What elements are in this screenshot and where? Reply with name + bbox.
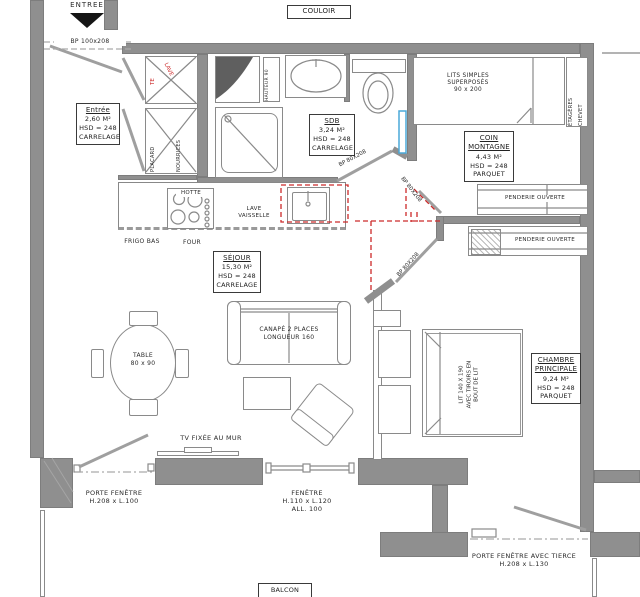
sdb-floor: CARRELAGE [312, 144, 352, 153]
pf-left-line2: H.208 x L.100 [72, 497, 156, 505]
entree-floor: CARRELAGE [79, 133, 117, 142]
hotte-label: HOTTE [176, 190, 206, 197]
room-box-sdb: SDB 3,24 M² HSD = 248 CARRELAGE [309, 114, 355, 156]
sejour-floor: CARRELAGE [216, 281, 258, 290]
chambre-floor: PARQUET [534, 392, 578, 401]
bunk-bed-label: LITS SIMPLES SUPERPOSÉS 90 x 200 [418, 73, 518, 95]
sejour-name: SÉJOUR [216, 254, 258, 263]
bed-line3: BOUT DE LIT [474, 330, 482, 440]
entrance-label: ENTREE [62, 1, 112, 10]
entry-door-label: BP 100x208 [54, 38, 126, 46]
sdb-hsd: HSD = 248 [312, 135, 352, 144]
room-box-entree: Entrée 2,60 M² HSD = 248 CARRELAGE [76, 103, 120, 145]
bunk-line3: 90 x 200 [418, 87, 518, 94]
entree-hsd: HSD = 248 [79, 124, 117, 133]
room-box-coin: COIN MONTAGNE 4,43 M² HSD = 248 PARQUET [464, 131, 514, 182]
etageres-line: ÉTAGÈRES [566, 58, 576, 126]
chambre-area: 9,24 M² [534, 375, 578, 384]
chambre-name1: CHAMBRE [534, 356, 578, 365]
sofa-line2: LONGUEUR 160 [247, 334, 331, 342]
coin-area: 4,43 M² [467, 153, 511, 162]
placard-label: PLACARD [151, 116, 157, 172]
radiator [399, 111, 406, 153]
coin-hsd: HSD = 248 [467, 162, 511, 171]
table-line1: TABLE [122, 352, 164, 360]
lave-line: LAVE [234, 206, 274, 213]
etageres-chevet-label: ÉTAGÈRES CHEVET [566, 58, 586, 126]
coin-name2: MONTAGNE [467, 143, 511, 152]
chambre-hsd: HSD = 248 [534, 384, 578, 393]
window-line1: FENÊTRE [265, 489, 349, 497]
four-label: FOUR [178, 239, 206, 247]
sdb-area: 3,24 M² [312, 126, 352, 135]
pf-tierce-label: PORTE FENÊTRE AVEC TIERCE H.208 x L.130 [450, 552, 598, 568]
room-box-chambre: CHAMBRE PRINCIPALE 9,24 M² HSD = 248 PAR… [531, 353, 581, 404]
hauteur90-label: HAUTEUR 90 [266, 59, 271, 101]
frigo-bas-label: FRIGO BAS [120, 238, 164, 246]
sejour-area: 15,30 M² [216, 263, 258, 272]
entrance-arrow-icon [70, 13, 104, 28]
pf-left-line1: PORTE FENÊTRE [72, 489, 156, 497]
pf-tierce-line1: PORTE FENÊTRE AVEC TIERCE [450, 552, 598, 560]
penderie-coin-label: PENDERIE OUVERTE [495, 195, 575, 202]
sofa-label: CANAPÉ 2 PLACES LONGUEUR 160 [247, 326, 331, 341]
chambre-name2: PRINCIPALE [534, 365, 578, 374]
table-label: TABLE 80 x 90 [122, 352, 164, 367]
pf-tierce-line2: H.208 x L.130 [450, 560, 598, 568]
table-line2: 80 x 90 [122, 360, 164, 368]
nourrices-label: NOURRICES [177, 112, 183, 172]
bed-line2: AVEC TIROIRS EN [466, 330, 474, 440]
corridor-box: COULOIR [287, 5, 351, 19]
tv-label: TV FIXÉE AU MUR [166, 434, 256, 442]
room-box-sejour: SÉJOUR 15,30 M² HSD = 248 CARRELAGE [213, 251, 261, 293]
entree-area: 2,60 M² [79, 115, 117, 124]
penderie-chambre-label: PENDERIE OUVERTE [505, 237, 585, 244]
coin-floor: PARQUET [467, 170, 511, 179]
chevet-line: CHEVET [576, 58, 586, 126]
lave-vaisselle-label: LAVE VAISSELLE [234, 206, 274, 220]
bed-line1: LIT 140 X 190 [458, 330, 466, 440]
coin-name1: COIN [467, 134, 511, 143]
washer-red-label-1: TE [150, 78, 156, 85]
pf-left-label: PORTE FENÊTRE H.208 x L.100 [72, 489, 156, 505]
sofa-line1: CANAPÉ 2 PLACES [247, 326, 331, 334]
balcon-box: BALCON [258, 583, 312, 597]
shower-dark-corner [216, 57, 253, 99]
sejour-hsd: HSD = 248 [216, 272, 258, 281]
window-line3: ALL. 100 [265, 505, 349, 513]
entree-name: Entrée [79, 106, 117, 115]
floor-plan: ENTREE COULOIR BP 100x208 Entrée 2,60 M²… [0, 0, 640, 597]
sdb-name: SDB [312, 117, 352, 126]
bed-label: LIT 140 X 190 AVEC TIROIRS EN BOUT DE LI… [458, 330, 481, 440]
vaisselle-line: VAISSELLE [234, 213, 274, 220]
window-label: FENÊTRE H.110 x L.120 ALL. 100 [265, 489, 349, 513]
window-line2: H.110 x L.120 [265, 497, 349, 505]
bunk-line2: SUPERPOSÉS [418, 80, 518, 87]
